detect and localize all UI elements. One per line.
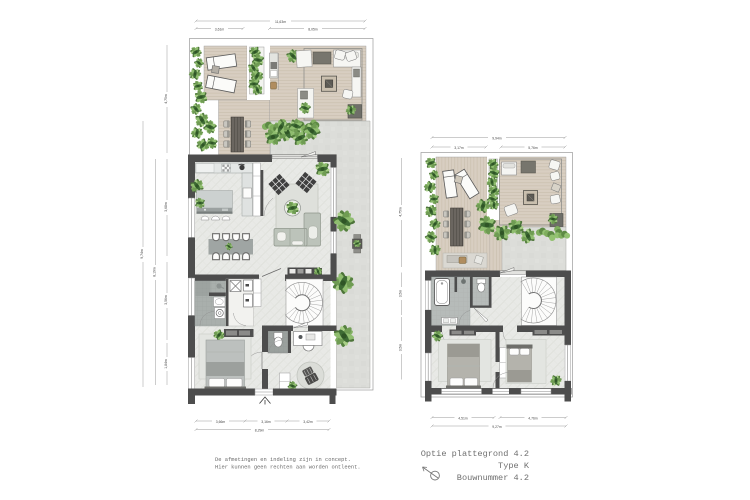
svg-text:9,27m: 9,27m <box>492 425 502 429</box>
svg-text:8,29m: 8,29m <box>255 429 265 433</box>
svg-text:3,16m: 3,16m <box>261 420 271 424</box>
svg-text:Optie plattegrond 4.2: Optie plattegrond 4.2 <box>421 449 529 459</box>
svg-text:4,75m: 4,75m <box>164 94 168 104</box>
svg-text:3,17m: 3,17m <box>454 146 464 150</box>
svg-text:8,19m: 8,19m <box>153 267 157 277</box>
svg-text:5,76m: 5,76m <box>528 146 538 150</box>
svg-text:3,42m: 3,42m <box>303 420 313 424</box>
svg-text:11,63m: 11,63m <box>275 20 286 24</box>
svg-text:8,05m: 8,05m <box>308 28 318 32</box>
svg-text:De afmetingen en indeling zijn: De afmetingen en indeling zijn in concep… <box>215 457 351 463</box>
svg-text:3,56m: 3,56m <box>164 295 168 305</box>
svg-text:3,66m: 3,66m <box>216 420 226 424</box>
svg-text:4,51m: 4,51m <box>458 417 468 421</box>
svg-text:4,75m: 4,75m <box>399 207 403 217</box>
svg-text:3,5m: 3,5m <box>399 344 403 352</box>
svg-text:9,94m: 9,94m <box>492 137 502 141</box>
svg-text:4,76m: 4,76m <box>528 417 538 421</box>
svg-text:Hier kunnen geen rechten aan w: Hier kunnen geen rechten aan worden ontl… <box>215 464 361 470</box>
svg-text:Type K: Type K <box>498 461 530 471</box>
svg-text:3,68m: 3,68m <box>164 202 168 212</box>
svg-text:1,84m: 1,84m <box>164 359 168 369</box>
svg-text:Bouwnummer 4.2: Bouwnummer 4.2 <box>457 473 529 483</box>
svg-text:9,74m: 9,74m <box>140 249 144 259</box>
svg-text:3,61m: 3,61m <box>215 28 225 32</box>
svg-text:3,5m: 3,5m <box>399 290 403 298</box>
